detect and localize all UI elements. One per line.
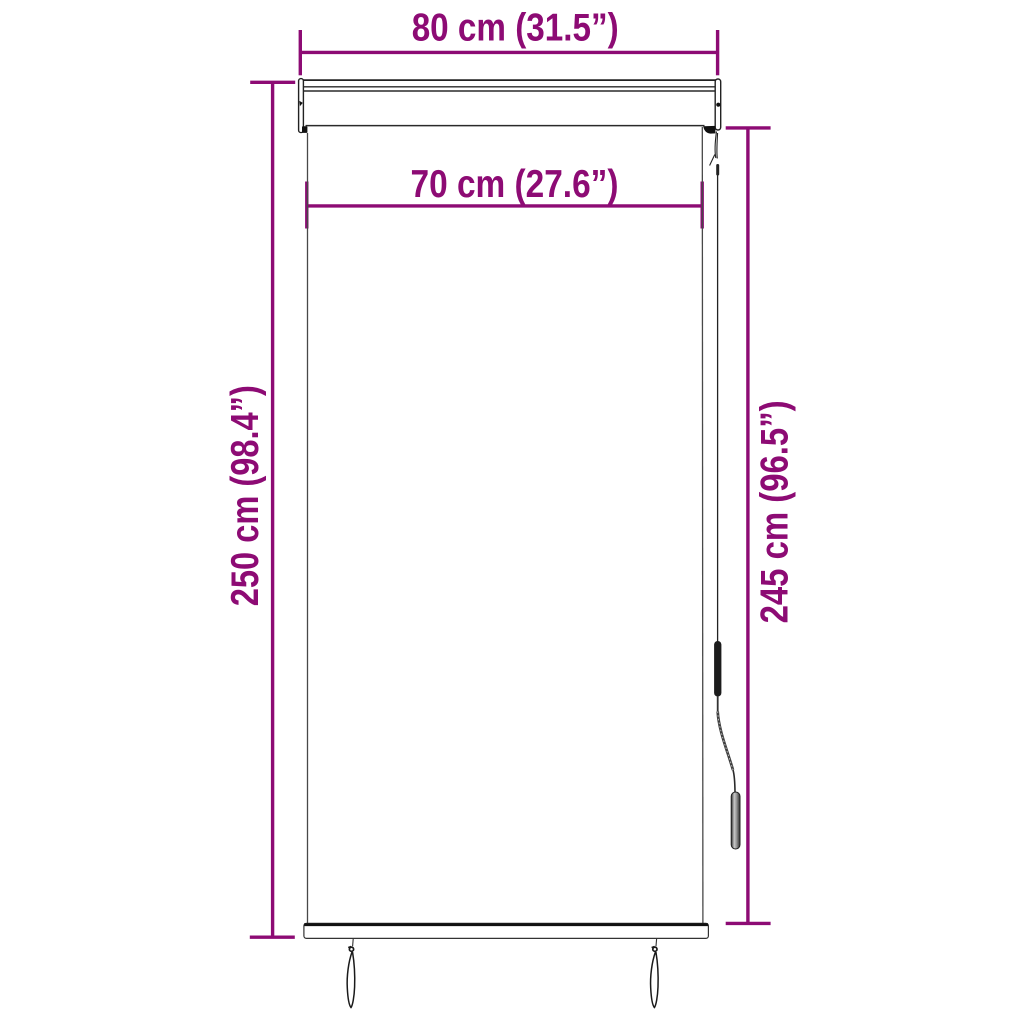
svg-text:80 cm (31.5”): 80 cm (31.5”) — [412, 7, 619, 50]
svg-text:70 cm (27.6”): 70 cm (27.6”) — [411, 163, 619, 206]
svg-text:250 cm (98.4”): 250 cm (98.4”) — [224, 385, 267, 606]
svg-text:245 cm (96.5”): 245 cm (96.5”) — [753, 400, 796, 623]
